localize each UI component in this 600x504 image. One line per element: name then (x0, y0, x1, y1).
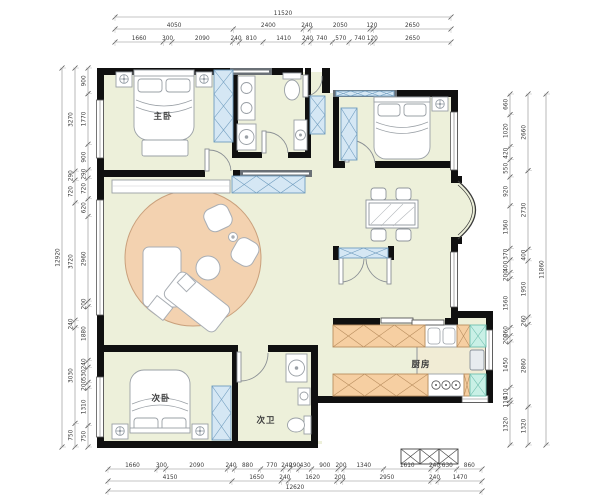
dim-label: 12920 (56, 248, 62, 267)
dim-label: 1620 (305, 475, 320, 481)
lamp-icon (196, 427, 205, 436)
dim-label: 200 (504, 270, 510, 281)
dim-label: 120 (366, 23, 377, 29)
dim-label: 240 (429, 475, 440, 481)
dim-label: 750 (69, 429, 75, 440)
floor-plan-canvas: 主卧 次卧 次卫 厨房 1152040502400240205012026501… (0, 0, 600, 504)
dim-label: 200 (82, 379, 88, 390)
room-label-second-bedroom: 次卧 (151, 393, 170, 404)
dim-row-right-2: 11860 (540, 92, 551, 448)
dim-label: 400 (504, 260, 510, 271)
lamp-icon (120, 75, 129, 84)
dim-label: 1360 (504, 219, 510, 234)
dim-label: 240 (302, 36, 313, 42)
kitchen-counter (333, 374, 428, 396)
second-bedroom-wardrobe (212, 386, 231, 440)
dim-label: 240 (82, 358, 88, 369)
storage-door-leaf (339, 258, 343, 284)
dim-label: 240 (225, 463, 236, 469)
dim-label: 4150 (163, 475, 178, 481)
dim-label: 2090 (195, 36, 210, 42)
dim-label: 1650 (249, 475, 264, 481)
dim-label: 900 (82, 75, 88, 86)
bathroom2-door-leaf (237, 352, 241, 382)
dim-label: 1560 (504, 295, 510, 310)
master-door-leaf (205, 149, 209, 171)
tv-cabinet (112, 180, 230, 193)
dim-label: 2860 (522, 358, 528, 373)
dim-label: 920 (504, 186, 510, 197)
dim-label: 900 (82, 151, 88, 162)
dim-label: 240 (279, 475, 290, 481)
dim-label: 550 (504, 163, 510, 174)
dim-label: 900 (319, 463, 330, 469)
dim-label: 1310 (82, 399, 88, 414)
coffee-table (196, 256, 220, 280)
master-bed-bench (142, 140, 188, 156)
living-cabinet (232, 176, 305, 193)
dim-label: 2950 (379, 475, 394, 481)
dim-row-bottom-1: 41501650240162020029502401470 (106, 475, 485, 485)
service-balcony (470, 325, 486, 347)
dim-label: 1450 (504, 357, 510, 372)
dim-label: 740 (354, 36, 365, 42)
dim-label: 200 (82, 298, 88, 309)
dim-label: 660 (504, 98, 510, 109)
sliding-door-panel (412, 320, 444, 325)
dim-label: 420 (504, 147, 510, 158)
dim-label: 3720 (69, 254, 75, 269)
dim-label: 810 (246, 36, 257, 42)
dim-label: 2650 (405, 36, 420, 42)
hall-shoe-cabinet (310, 96, 325, 134)
dim-label: 11860 (540, 260, 546, 279)
dim-row-bottom-0: 1660300209024088077024029043090020013401… (106, 463, 485, 473)
dim-label: 2050 (333, 23, 348, 29)
dim-label: 11520 (274, 11, 293, 17)
service-balcony (470, 374, 486, 396)
room-label-kitchen: 厨房 (411, 359, 430, 370)
dim-label: 300 (156, 463, 167, 469)
dim-label: 200 (335, 463, 346, 469)
dim-label: 530 (82, 369, 88, 380)
room-label-master-bedroom: 主卧 (153, 111, 172, 122)
dim-label: 3270 (69, 112, 75, 127)
dim-label: 240 (231, 36, 242, 42)
dim-label: 770 (266, 463, 277, 469)
lamp-icon (116, 427, 125, 436)
dim-label: 3030 (69, 368, 75, 383)
dim-label: 860 (464, 463, 475, 469)
dim-label: 1610 (400, 463, 415, 469)
kitchen-counter (464, 374, 470, 396)
dim-row-top-1: 4050240024020501202650 (113, 23, 454, 33)
toilet-tank (304, 416, 311, 434)
dim-label: 4050 (167, 23, 182, 29)
dim-label: 630 (442, 463, 453, 469)
lamp-icon (436, 100, 445, 109)
fridge (470, 350, 484, 370)
dim-label: 720 (69, 186, 75, 197)
room-label-second-bathroom: 次卫 (256, 415, 275, 426)
dim-label: 200 (504, 333, 510, 344)
dim-label: 1340 (356, 463, 371, 469)
dim-label: 880 (242, 463, 253, 469)
dim-label: 720 (82, 183, 88, 194)
floor-plan-page: 主卧 次卧 次卫 厨房 1152040502400240205012026501… (0, 0, 600, 504)
dim-row-top-0: 11520 (113, 11, 454, 21)
dim-label: 1660 (132, 36, 147, 42)
dim-row-right-1: 26602730400195026028601320 (522, 92, 533, 448)
dim-label: 290 (82, 168, 88, 179)
dim-row-right-0: 6601020420550920136037040020015602602001… (504, 92, 515, 448)
dim-label: 400 (522, 249, 528, 260)
dim-label: 1470 (453, 475, 468, 481)
sliding-door-panel (381, 318, 413, 323)
ac-unit (439, 449, 458, 464)
dim-label: 2660 (522, 125, 528, 140)
dim-label: 2650 (405, 23, 420, 29)
dim-label: 750 (82, 430, 88, 441)
dim-label: 260 (522, 315, 528, 326)
dim-row-top-2: 1660300209024081014102407405707401202650 (113, 36, 454, 46)
dim-label: 370 (504, 248, 510, 259)
dim-label: 2730 (522, 202, 528, 217)
dim-label: 1410 (276, 36, 291, 42)
kitchen-counter (457, 325, 470, 347)
toilet-bowl (285, 80, 300, 100)
ac-unit (420, 449, 439, 464)
dim-label: 240 (429, 463, 440, 469)
dim-label: 1950 (522, 281, 528, 296)
dim-label: 740 (316, 36, 327, 42)
dim-label: 1880 (82, 326, 88, 341)
dim-label: 240 (301, 23, 312, 29)
lamp-icon (200, 75, 209, 84)
dim-label: 110 (504, 396, 510, 407)
dim-row-bottom-2: 12620 (106, 485, 485, 495)
kitchen-counter (333, 325, 425, 347)
dim-label: 120 (367, 36, 378, 42)
dim-label: 2090 (189, 463, 204, 469)
dim-label: 2960 (82, 251, 88, 266)
window-band (336, 91, 394, 96)
ac-unit (401, 449, 420, 464)
dim-label: 1660 (125, 463, 140, 469)
tr-bedroom-wardrobe (341, 108, 357, 160)
dim-label: 430 (300, 463, 311, 469)
dim-label: 290 (69, 170, 75, 181)
dim-label: 12620 (286, 485, 305, 491)
dim-label: 200 (334, 475, 345, 481)
dim-row-left-1: 327029072037202403030750 (69, 66, 80, 450)
entry-door-leaf (303, 75, 308, 97)
dim-label: 2400 (261, 23, 276, 29)
dim-label: 1320 (504, 417, 510, 432)
dim-label: 300 (162, 36, 173, 42)
dim-label: 570 (335, 36, 346, 42)
dim-label: 240 (69, 318, 75, 329)
toilet-bowl (288, 418, 305, 432)
hall-closet-strip (339, 248, 388, 258)
dim-label: 1020 (504, 123, 510, 138)
toilet-tank (283, 73, 301, 79)
dim-label: 1770 (82, 111, 88, 126)
master-wardrobe (214, 70, 233, 142)
bath-door-leaf (262, 131, 266, 153)
dim-label: 620 (82, 202, 88, 213)
storage-door-leaf (387, 258, 391, 284)
dim-row-left-0: 12920 (56, 66, 67, 450)
dim-label: 1320 (522, 418, 528, 433)
dim-row-left-2: 9001770900290720620296020018802405302001… (82, 66, 93, 450)
